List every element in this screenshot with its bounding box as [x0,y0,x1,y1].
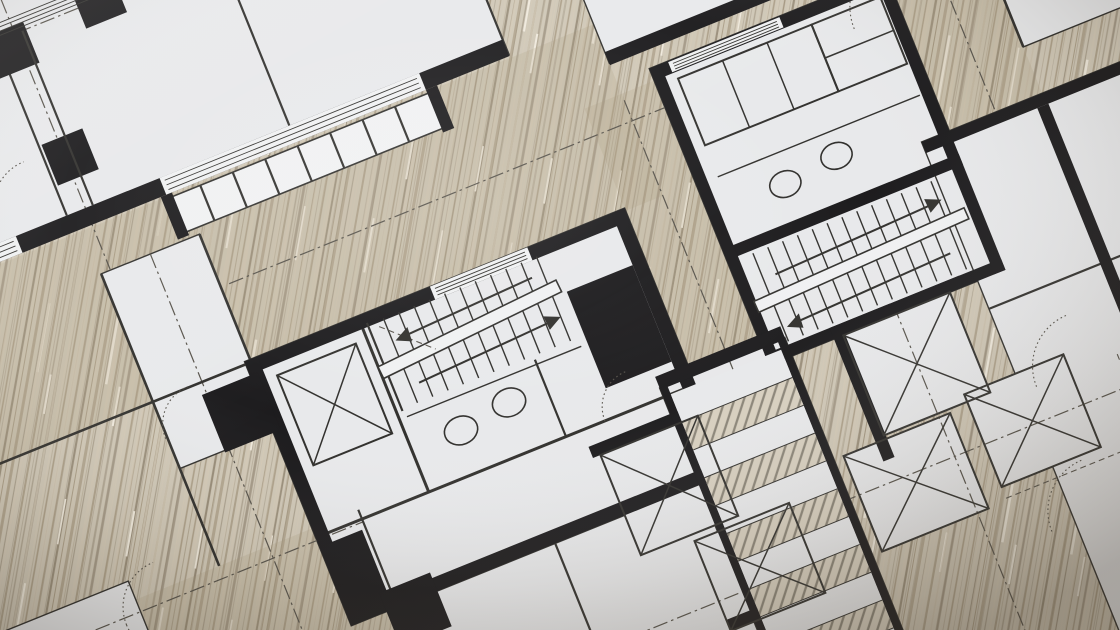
blueprint-photo-stage [0,0,1120,630]
floor-plan-photo [0,0,1120,630]
photo-lighting [0,0,1120,630]
